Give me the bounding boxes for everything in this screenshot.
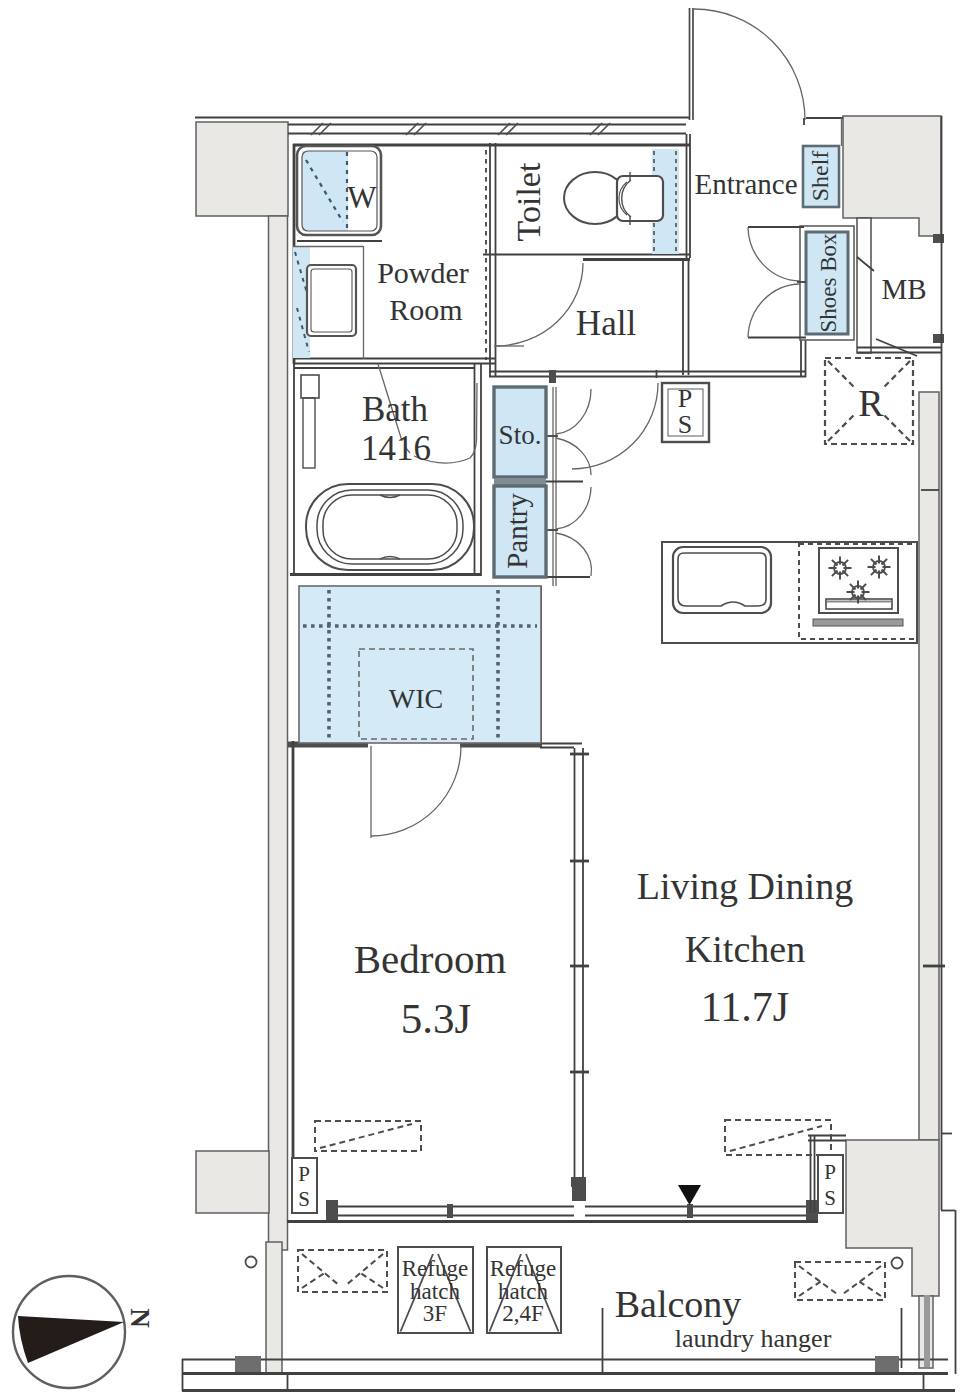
svg-text:WIC: WIC <box>389 683 443 714</box>
svg-text:1416: 1416 <box>361 429 431 468</box>
svg-text:MB: MB <box>881 273 926 305</box>
svg-text:Shelf: Shelf <box>807 151 833 202</box>
svg-text:Shoes Box: Shoes Box <box>816 233 841 333</box>
svg-text:Room: Room <box>389 293 462 326</box>
svg-text:Living Dining: Living Dining <box>637 865 853 907</box>
svg-text:Sto.: Sto. <box>499 420 542 450</box>
svg-text:Pantry: Pantry <box>501 493 533 569</box>
svg-text:Bedroom: Bedroom <box>354 936 507 982</box>
svg-text:Refuge: Refuge <box>490 1256 556 1281</box>
svg-text:R: R <box>858 382 884 424</box>
svg-text:W: W <box>347 180 377 215</box>
svg-text:S: S <box>298 1187 310 1211</box>
svg-text:Kitchen: Kitchen <box>685 928 805 970</box>
svg-text:Entrance: Entrance <box>694 168 797 200</box>
svg-text:2,4F: 2,4F <box>502 1301 544 1326</box>
svg-text:Hall: Hall <box>576 304 637 343</box>
svg-text:P: P <box>824 1160 836 1184</box>
svg-text:Balcony: Balcony <box>615 1283 742 1325</box>
svg-text:S: S <box>824 1186 836 1210</box>
svg-text:Toilet: Toilet <box>510 162 547 241</box>
svg-text:3F: 3F <box>423 1301 447 1326</box>
svg-text:Bath: Bath <box>362 390 429 429</box>
svg-text:5.3J: 5.3J <box>401 995 471 1042</box>
svg-text:11.7J: 11.7J <box>701 984 789 1030</box>
svg-text:P: P <box>298 1162 310 1186</box>
svg-text:Refuge: Refuge <box>402 1256 468 1281</box>
svg-text:P: P <box>678 384 692 413</box>
svg-text:laundry hanger: laundry hanger <box>675 1324 832 1353</box>
svg-text:N: N <box>125 1308 155 1328</box>
svg-text:Powder: Powder <box>377 256 469 289</box>
svg-text:S: S <box>678 410 692 439</box>
